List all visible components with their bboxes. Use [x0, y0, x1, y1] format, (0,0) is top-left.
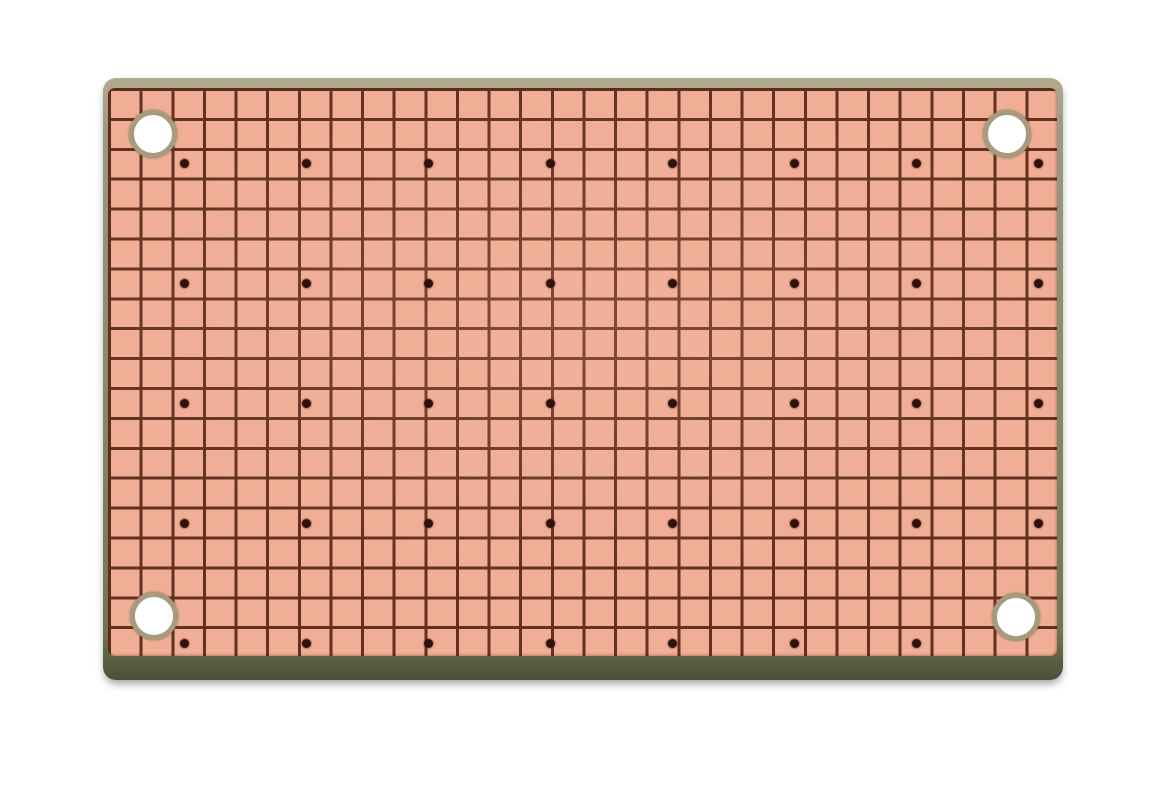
drill-dot [424, 519, 433, 528]
drill-dot [424, 159, 433, 168]
drill-dot [180, 279, 189, 288]
drill-dot [790, 399, 799, 408]
drill-dot [546, 399, 555, 408]
drill-dot [546, 279, 555, 288]
drill-dot [180, 639, 189, 648]
drill-dot [302, 279, 311, 288]
copper-grid-surface [108, 88, 1057, 656]
drill-dot [912, 519, 921, 528]
drill-dot [790, 519, 799, 528]
drill-dot [302, 519, 311, 528]
drill-dot [546, 519, 555, 528]
drill-dot [912, 399, 921, 408]
mounting-hole [992, 593, 1040, 641]
drill-dot [180, 519, 189, 528]
drill-dot [668, 279, 677, 288]
drill-dot [180, 159, 189, 168]
drill-dot [1034, 399, 1043, 408]
drill-dot [790, 159, 799, 168]
drill-dot [302, 159, 311, 168]
drill-dot [668, 399, 677, 408]
mounting-hole [130, 592, 178, 640]
drill-dot [668, 159, 677, 168]
drill-dot [546, 639, 555, 648]
drill-dot [790, 639, 799, 648]
drill-dot [546, 159, 555, 168]
drill-dot [912, 159, 921, 168]
drill-dot [180, 399, 189, 408]
drill-dot [912, 639, 921, 648]
mounting-hole [129, 110, 177, 158]
photo-background [0, 0, 1175, 800]
drill-dot [424, 399, 433, 408]
drill-dot [1034, 519, 1043, 528]
drill-dot [302, 399, 311, 408]
mounting-hole [983, 110, 1031, 158]
drill-dot [668, 519, 677, 528]
drill-dot [912, 279, 921, 288]
drill-dot [668, 639, 677, 648]
drill-dot [1034, 279, 1043, 288]
drill-dot [1034, 159, 1043, 168]
perfboard [103, 78, 1063, 680]
drill-dot [424, 639, 433, 648]
drill-dot [424, 279, 433, 288]
drill-dot [302, 639, 311, 648]
drill-dot [790, 279, 799, 288]
